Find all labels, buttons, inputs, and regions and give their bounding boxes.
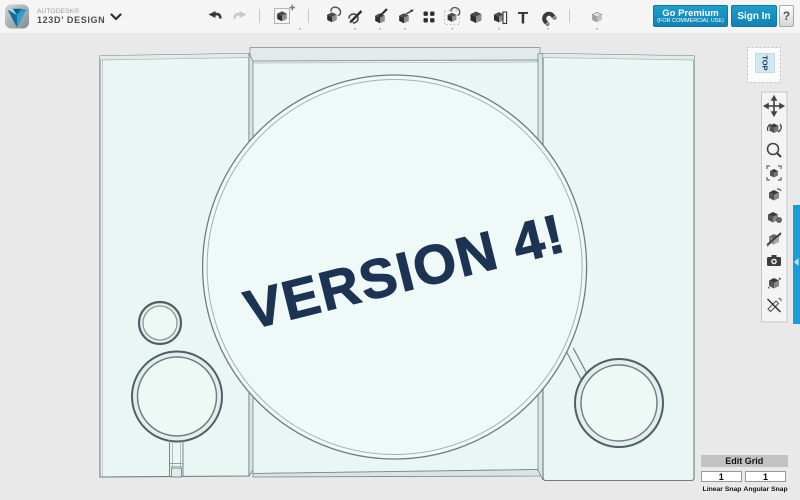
svg-text:TOP: TOP xyxy=(761,55,770,70)
svg-text:T: T xyxy=(518,9,529,28)
